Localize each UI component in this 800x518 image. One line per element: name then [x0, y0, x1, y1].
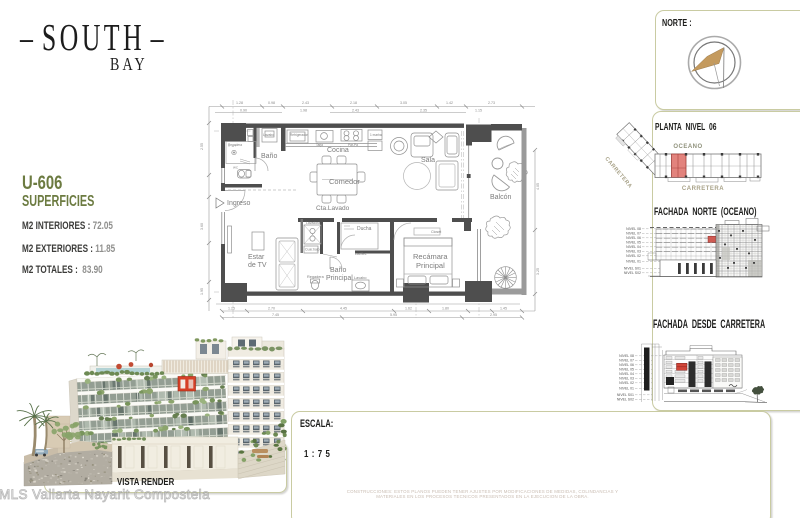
- svg-text:NIVEL 02: NIVEL 02: [626, 254, 641, 258]
- svg-text:7.45: 7.45: [272, 313, 279, 317]
- svg-text:NIVEL 05: NIVEL 05: [619, 368, 634, 372]
- svg-text:1 marha: 1 marha: [370, 133, 382, 137]
- svg-text:Estar: Estar: [248, 254, 265, 261]
- svg-text:Lavabo: Lavabo: [354, 276, 366, 280]
- svg-text:NIVEL 03: NIVEL 03: [619, 377, 634, 381]
- svg-text:2.43: 2.43: [302, 101, 309, 105]
- svg-text:2.43: 2.43: [352, 109, 359, 113]
- svg-text:NIVEL 04: NIVEL 04: [619, 372, 634, 376]
- svg-text:Refrigerador: Refrigerador: [290, 133, 309, 137]
- svg-text:NIVEL 07: NIVEL 07: [619, 359, 634, 363]
- svg-text:NIVEL 03: NIVEL 03: [626, 250, 641, 254]
- svg-text:de TV: de TV: [248, 262, 267, 269]
- svg-text:Baño: Baño: [261, 153, 277, 160]
- svg-text:Principal: Principal: [326, 275, 353, 282]
- svg-text:2.73: 2.73: [488, 101, 495, 105]
- svg-text:1.42: 1.42: [446, 101, 453, 105]
- svg-text:1.25: 1.25: [228, 307, 235, 311]
- svg-text:5.95: 5.95: [390, 313, 397, 317]
- svg-text:4.45: 4.45: [340, 307, 347, 311]
- svg-text:1.95: 1.95: [200, 288, 204, 295]
- svg-text:Regadera: Regadera: [307, 275, 325, 279]
- svg-text:0.98: 0.98: [268, 101, 275, 105]
- svg-text:2.35: 2.35: [420, 109, 427, 113]
- svg-text:Cocina: Cocina: [327, 147, 349, 154]
- svg-text:Lav/Sec: Lav/Sec: [355, 252, 367, 256]
- svg-text:Regadera: Regadera: [228, 143, 242, 147]
- svg-text:Par-Pa: Par-Pa: [348, 143, 358, 147]
- svg-text:4.05: 4.05: [536, 183, 540, 190]
- svg-text:Comedor: Comedor: [329, 177, 360, 186]
- svg-text:NIVEL 05: NIVEL 05: [626, 241, 641, 245]
- svg-text:NIVEL S02: NIVEL S02: [624, 271, 641, 275]
- svg-text:Recámara: Recámara: [413, 252, 448, 261]
- svg-text:NIVEL 04: NIVEL 04: [626, 245, 641, 249]
- svg-text:2.55: 2.55: [200, 143, 204, 150]
- svg-text:Baño: Baño: [330, 267, 346, 274]
- svg-text:2.95: 2.95: [490, 313, 497, 317]
- svg-text:1.15: 1.15: [475, 109, 482, 113]
- svg-text:Lavadora: Lavadora: [306, 221, 320, 225]
- svg-text:Cta.Lavado: Cta.Lavado: [316, 205, 350, 212]
- svg-text:Cuar.bajo: Cuar.bajo: [305, 248, 320, 252]
- svg-text:NIVEL S01: NIVEL S01: [617, 393, 634, 397]
- svg-text:Ingreso: Ingreso: [227, 200, 250, 207]
- svg-text:1.45: 1.45: [500, 307, 507, 311]
- svg-text:0.90: 0.90: [240, 109, 247, 113]
- svg-text:NIVEL S02: NIVEL S02: [617, 398, 634, 402]
- svg-text:Sala: Sala: [421, 157, 435, 164]
- svg-text:Principal: Principal: [416, 261, 445, 270]
- svg-text:NIVEL 02: NIVEL 02: [619, 381, 634, 385]
- svg-text:NIVEL 08: NIVEL 08: [619, 354, 634, 358]
- svg-text:2.70: 2.70: [268, 307, 275, 311]
- svg-text:2.18: 2.18: [350, 101, 357, 105]
- svg-text:NIVEL 07: NIVEL 07: [626, 232, 641, 236]
- svg-text:Closet: Closet: [431, 230, 441, 234]
- svg-text:NIVEL S01: NIVEL S01: [624, 267, 641, 271]
- svg-text:NIVEL 01: NIVEL 01: [626, 260, 641, 264]
- svg-text:3.05: 3.05: [400, 101, 407, 105]
- svg-text:Tarja: Tarja: [316, 143, 323, 147]
- svg-text:1.98: 1.98: [300, 109, 307, 113]
- svg-text:NIVEL 08: NIVEL 08: [626, 227, 641, 231]
- svg-text:3.60: 3.60: [200, 223, 204, 230]
- svg-text:WC: WC: [233, 166, 239, 170]
- svg-text:3.25: 3.25: [536, 268, 540, 275]
- svg-text:1.28: 1.28: [236, 101, 243, 105]
- svg-text:NIVEL 06: NIVEL 06: [619, 363, 634, 367]
- svg-text:1.62: 1.62: [405, 307, 412, 311]
- svg-text:Ducha: Ducha: [357, 226, 372, 232]
- svg-text:NIVEL 06: NIVEL 06: [626, 236, 641, 240]
- svg-text:Balcón: Balcón: [490, 194, 512, 201]
- svg-text:Lavabo: Lavabo: [263, 133, 274, 137]
- svg-text:1.80: 1.80: [442, 307, 449, 311]
- svg-text:NIVEL 01: NIVEL 01: [619, 387, 634, 391]
